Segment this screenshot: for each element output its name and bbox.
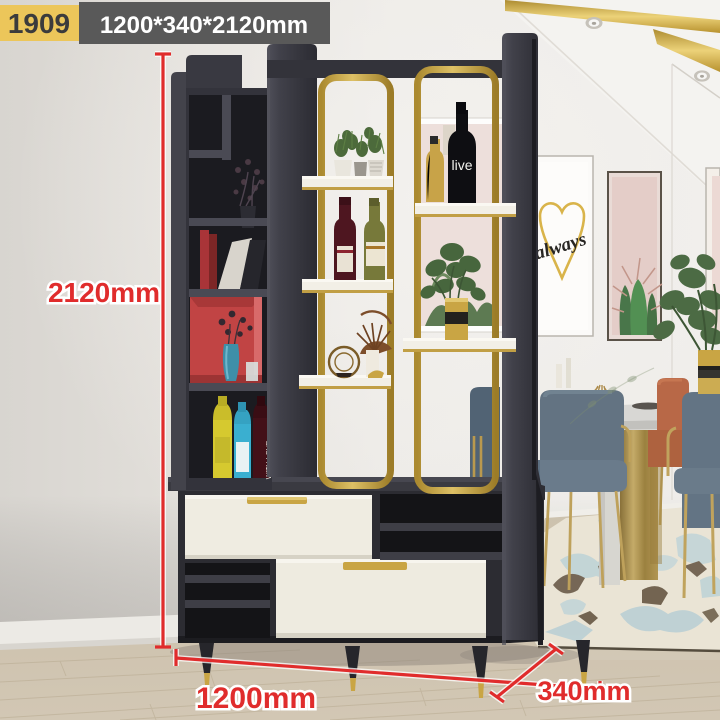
svg-text:1200*340*2120mm: 1200*340*2120mm (100, 12, 308, 39)
svg-text:1909: 1909 (8, 8, 70, 39)
svg-text:2120mm: 2120mm (48, 277, 160, 308)
svg-text:1200mm: 1200mm (196, 682, 316, 715)
svg-text:live: live (451, 157, 472, 173)
svg-text:340mm: 340mm (537, 676, 630, 706)
